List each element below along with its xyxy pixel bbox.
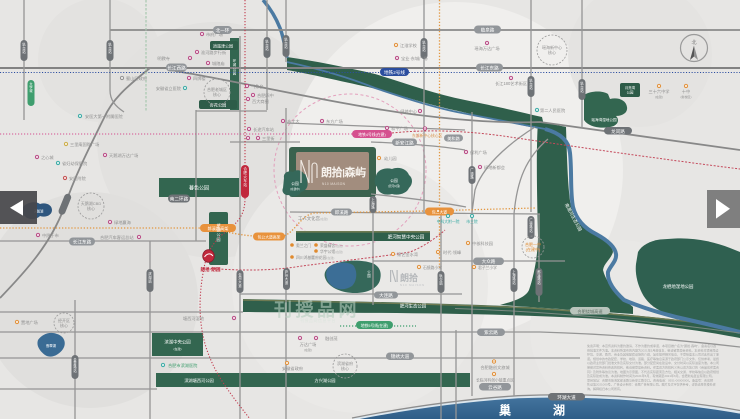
- svg-text:包公大道高架: 包公大道高架: [258, 234, 281, 239]
- svg-text:大连路: 大连路: [379, 292, 393, 299]
- svg-text:地铁4号线(在建): 地铁4号线(在建): [358, 132, 386, 137]
- svg-text:第二人民医院: 第二人民医院: [540, 107, 566, 114]
- svg-text:瑶海湾湿地公园: 瑶海湾湿地公园: [591, 117, 617, 122]
- svg-text:刊授品网: 刊授品网: [274, 299, 360, 320]
- svg-text:合肥四中: 合肥四中: [257, 92, 274, 99]
- svg-text:三里庵国购广场: 三里庵国购广场: [70, 141, 99, 148]
- svg-text:(滨河公园): (滨河公园): [388, 184, 400, 188]
- svg-text:四川鸿基麓府花园(在建): 四川鸿基麓府花园(在建): [296, 255, 334, 260]
- svg-text:及实际建成为准。本资料制作时间为2021年5月，有效期至20: 及实际建成为准。本资料制作时间为2021年5月，有效期至2021年6月。合肥新站…: [587, 373, 715, 378]
- svg-text:临泉路: 临泉路: [481, 26, 495, 33]
- svg-text:云谷路: 云谷路: [488, 384, 502, 391]
- svg-text:锦艺金水湾: 锦艺金水湾: [397, 251, 418, 258]
- svg-text:南二环路: 南二环路: [170, 195, 189, 202]
- svg-text:合肥汽车客运总站: 合肥汽车客运总站: [100, 234, 134, 241]
- svg-text:锦绣大道: 锦绣大道: [391, 353, 410, 360]
- svg-text:公园: 公园: [291, 181, 299, 186]
- svg-text:置地广场: 置地广场: [21, 319, 38, 326]
- svg-text:石镜路小学: 石镜路小学: [423, 265, 442, 270]
- svg-text:(在建): (在建): [174, 346, 182, 351]
- svg-text:合肥绕城高速: 合肥绕城高速: [577, 308, 603, 315]
- svg-text:长江180艺术街区: 长江180艺术街区: [495, 80, 527, 87]
- svg-text:环境、交通、教育、商业及其他配套设施的介绍，旨在提供相关信息: 环境、交通、教育、商业及其他配套设施的介绍，旨在提供相关信息，不意味着本公司对此…: [587, 352, 719, 357]
- svg-text:百大商圈: 百大商圈: [252, 98, 269, 105]
- svg-text:万达广场: 万达广场: [300, 341, 317, 348]
- svg-text:以政府主管部门批准文件及实际交付为准。部分配套尚在建设中，交: 以政府主管部门批准文件及实际交付为准。部分配套尚在建设中，交付时间以实际进度为准…: [587, 360, 719, 365]
- svg-text:明教寺: 明教寺: [157, 55, 170, 62]
- svg-text:中隐于市: 中隐于市: [42, 232, 59, 239]
- svg-text:融创茂: 融创茂: [325, 335, 338, 342]
- svg-text:望湖公园: 望湖公园: [217, 222, 221, 242]
- svg-text:府批准文件为准。本资料所发布的内容为2021年5月前信息，敬: 府批准文件为准。本资料所发布的内容为2021年5月前信息，敬请留意最新资料。本资…: [587, 347, 718, 352]
- svg-text:朗拾: 朗拾: [400, 272, 418, 283]
- svg-text:逍遥津公园: 逍遥津公园: [213, 43, 233, 49]
- svg-text:奥兰之门: 奥兰之门: [296, 243, 311, 248]
- svg-text:东方广场: 东方广场: [326, 118, 343, 125]
- svg-text:省妇幼保健院: 省妇幼保健院: [62, 160, 88, 167]
- svg-text:长江东路: 长江东路: [480, 64, 499, 71]
- svg-text:(新校区): (新校区): [681, 94, 692, 99]
- svg-text:(在建中): (在建中): [290, 187, 300, 191]
- svg-text:三里街: 三里街: [262, 135, 275, 142]
- svg-text:肥河智慧中央公园: 肥河智慧中央公园: [388, 234, 425, 241]
- svg-text:N10 MAISON: N10 MAISON: [400, 283, 425, 287]
- svg-text:核心: 核心: [341, 365, 349, 371]
- svg-text:保留对宣传资料修改的权利，敬请留意最新资料。买卖双方的权利义: 保留对宣传资料修改的权利，敬请留意最新资料。买卖双方的权利义务以双方签订的《商品…: [587, 365, 719, 370]
- svg-text:气象台: 气象台: [251, 83, 264, 90]
- svg-text:三十六中学: 三十六中学: [649, 88, 670, 95]
- svg-text:(在建): (在建): [655, 94, 663, 99]
- svg-text:朗拾·朗园: 朗拾·朗园: [201, 266, 221, 273]
- svg-text:合肥市滨湖医院: 合肥市滨湖医院: [168, 362, 198, 369]
- svg-text:淮河路步行街: 淮河路步行街: [201, 49, 226, 56]
- svg-text:大众路: 大众路: [482, 258, 496, 265]
- svg-text:蜀山区政府: 蜀山区政府: [126, 75, 147, 82]
- svg-text:巢: 巢: [498, 403, 511, 418]
- svg-text:滨湖中央公园: 滨湖中央公园: [164, 339, 191, 346]
- svg-text:塘西河湿地: 塘西河湿地: [183, 315, 205, 322]
- svg-text:翡翠湖: 翡翠湖: [46, 343, 57, 348]
- svg-text:合肥火车站: 合肥火车站: [243, 166, 247, 187]
- svg-text:方兴湖公园: 方兴湖公园: [315, 377, 336, 384]
- svg-text:地铁2号线: 地铁2号线: [384, 69, 405, 76]
- svg-text:美和路: 美和路: [447, 135, 460, 142]
- svg-text:安徽省政府: 安徽省政府: [282, 365, 303, 372]
- svg-text:绿地新都会: 绿地新都会: [484, 164, 506, 171]
- svg-text:公园: 公园: [390, 178, 398, 183]
- svg-text:同》及附件等协议为准。地图为示意图，不代表实际距离及方位，相: 同》及附件等协议为准。地图为示意图，不代表实际距离及方位，相关交通、学校等信息以…: [587, 369, 719, 374]
- svg-text:城隍庙: 城隍庙: [212, 60, 225, 67]
- svg-text:安医附院: 安医附院: [69, 175, 87, 182]
- svg-text:询。解释权归本公司所有。: 询。解释权归本公司所有。: [587, 386, 623, 391]
- svg-text:安徽省立医院: 安徽省立医院: [156, 85, 182, 92]
- svg-text:绿地赢海: 绿地赢海: [114, 219, 132, 226]
- svg-text:中科大附一院: 中科大附一院: [437, 219, 460, 224]
- svg-text:市三院: 市三院: [466, 219, 478, 224]
- svg-text:地铁5号线(在建): 地铁5号线(在建): [361, 323, 389, 328]
- svg-text:时代·领峰: 时代·领峰: [443, 249, 462, 256]
- svg-text:(在建): (在建): [304, 347, 312, 352]
- svg-text:核心: 核心: [60, 322, 68, 328]
- svg-text:北: 北: [691, 39, 696, 46]
- svg-text:合工大: 合工大: [287, 118, 300, 125]
- svg-text:长江东路: 长江东路: [73, 238, 92, 245]
- svg-text:江淮学校: 江淮学校: [400, 42, 418, 49]
- svg-text:市府广场: 市府广场: [206, 31, 223, 38]
- svg-text:诺。规划中的市政配套、学校、地铁、道路、医疗等信息来源于政府: 诺。规划中的市政配套、学校、地铁、道路、医疗等信息来源于政府部门公示文件，仅供参…: [587, 356, 719, 361]
- svg-text:长临河科创小镇重点区: 长临河科创小镇重点区: [476, 378, 514, 383]
- svg-text:紫云路: 紫云路: [484, 329, 498, 336]
- svg-text:月亮湾: 月亮湾: [625, 85, 636, 90]
- svg-text:朗拾|森屿: 朗拾|森屿: [321, 165, 366, 179]
- svg-text:核心: 核心: [213, 91, 221, 97]
- svg-text:新安江路: 新安江路: [395, 139, 414, 146]
- svg-text:瑶海万达广场: 瑶海万达广场: [474, 45, 499, 52]
- svg-text:合肥融创文旅城: 合肥融创文旅城: [480, 364, 510, 371]
- svg-text:龙栖地湿地公园: 龙栖地湿地公园: [663, 283, 694, 290]
- svg-text:和平广场: 和平广场: [391, 125, 408, 132]
- svg-text:滨湖塘西河公园: 滨湖塘西河公园: [184, 377, 213, 384]
- svg-text:龙岗路: 龙岗路: [611, 128, 625, 135]
- svg-text:华宇公馆(在建): 华宇公馆(在建): [320, 249, 343, 254]
- svg-text:幼儿园: 幼儿园: [384, 155, 397, 162]
- svg-text:免责声明：本宣传资料为要约邀请，不作为要约或承诺，本项目推广: 免责声明：本宣传资料为要约邀请，不作为要约或承诺，本项目推广名为"朗拾·森屿"，…: [587, 343, 716, 348]
- svg-text:宝业·东城广场: 宝业·东城广场: [401, 55, 428, 62]
- svg-text:刊授品网信息平台: 刊授品网信息平台: [300, 317, 336, 323]
- svg-text:核心: 核心: [548, 49, 556, 55]
- svg-text:公园: 公园: [627, 90, 634, 95]
- svg-text:绿地中心: 绿地中心: [400, 108, 418, 115]
- svg-text:保利广场: 保利广场: [470, 149, 487, 156]
- svg-text:核心: 核心: [87, 205, 95, 211]
- svg-text:湖: 湖: [553, 403, 565, 418]
- svg-text:长途汽车站: 长途汽车站: [253, 126, 274, 133]
- svg-text:肥河生态公园: 肥河生态公园: [400, 303, 427, 310]
- svg-text:东部新中心核心区: 东部新中心核心区: [412, 133, 443, 138]
- svg-text:环湖大道: 环湖大道: [557, 394, 576, 401]
- svg-text:长江西路: 长江西路: [167, 64, 186, 71]
- svg-text:郎溪路: 郎溪路: [335, 209, 349, 216]
- svg-text:中核科技园: 中核科技园: [472, 240, 493, 247]
- svg-text:安医大第一附属医院: 安医大第一附属医院: [85, 113, 124, 120]
- svg-text:N10 MAISON: N10 MAISON: [322, 182, 346, 186]
- svg-text:十中: 十中: [682, 88, 690, 95]
- svg-text:暮色公园: 暮色公园: [189, 185, 209, 192]
- svg-text:售证第2021000号。广告设计制作：合肥广告有限公司。图片: 售证第2021000号。广告设计制作：合肥广告有限公司。图片及文字仅供参考，详情…: [587, 382, 716, 387]
- svg-text:(在建中): (在建中): [526, 246, 541, 252]
- svg-text:项目地址：合肥市瑶海区郎溪路与新安江路交口。咨询电话：055: 项目地址：合肥市瑶海区郎溪路与新安江路交口。咨询电话：0551-00000000…: [587, 377, 713, 382]
- svg-text:天鹅湖万达广场: 天鹅湖万达广场: [109, 152, 138, 159]
- svg-text:荣盛精舍(在建): 荣盛精舍(在建): [320, 243, 343, 248]
- svg-text:之心城: 之心城: [41, 154, 54, 161]
- svg-text:君子兰小学: 君子兰小学: [478, 265, 497, 270]
- svg-text:工人文化宫(在建): 工人文化宫(在建): [298, 215, 328, 222]
- svg-text:四牌楼: 四牌楼: [193, 75, 206, 82]
